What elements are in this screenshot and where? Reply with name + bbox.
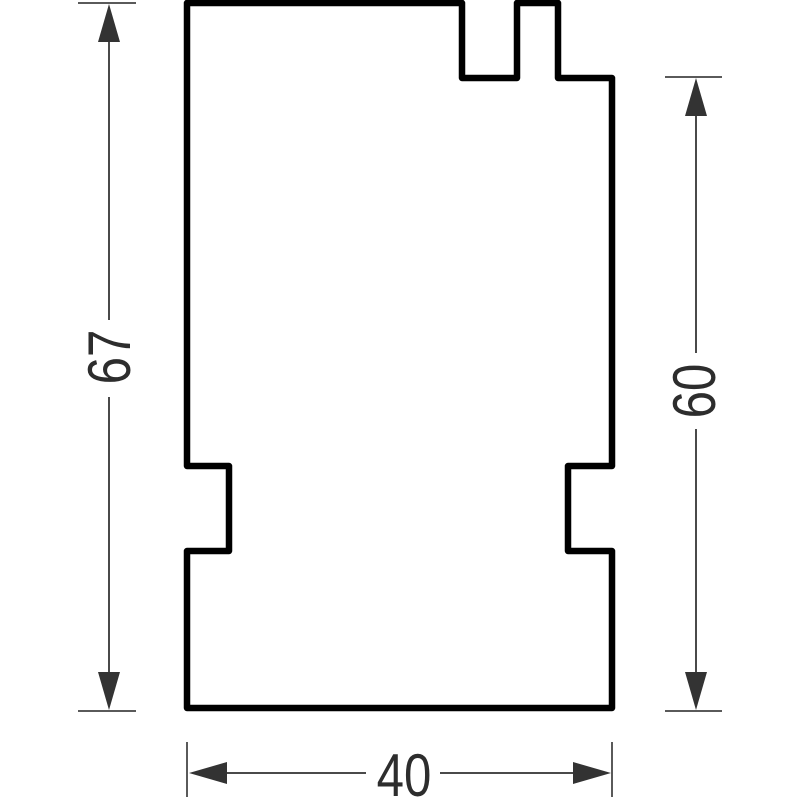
dimension-bottom-width: 40	[187, 741, 612, 800]
arrow-down-icon	[98, 672, 120, 710]
arrow-up-icon	[685, 78, 707, 116]
dimension-left-height: 67	[75, 3, 143, 711]
technical-drawing: 67 60 40	[0, 0, 800, 800]
arrow-left-icon	[189, 762, 227, 784]
arrow-up-icon	[98, 4, 120, 42]
part-outline	[187, 3, 612, 708]
arrow-down-icon	[685, 672, 707, 710]
dimension-label-bottom-width: 40	[377, 741, 432, 800]
dimension-label-right-height: 60	[660, 364, 728, 419]
dimension-right-height: 60	[660, 77, 728, 711]
dimension-label-left-height: 67	[75, 330, 143, 385]
arrow-right-icon	[573, 762, 611, 784]
